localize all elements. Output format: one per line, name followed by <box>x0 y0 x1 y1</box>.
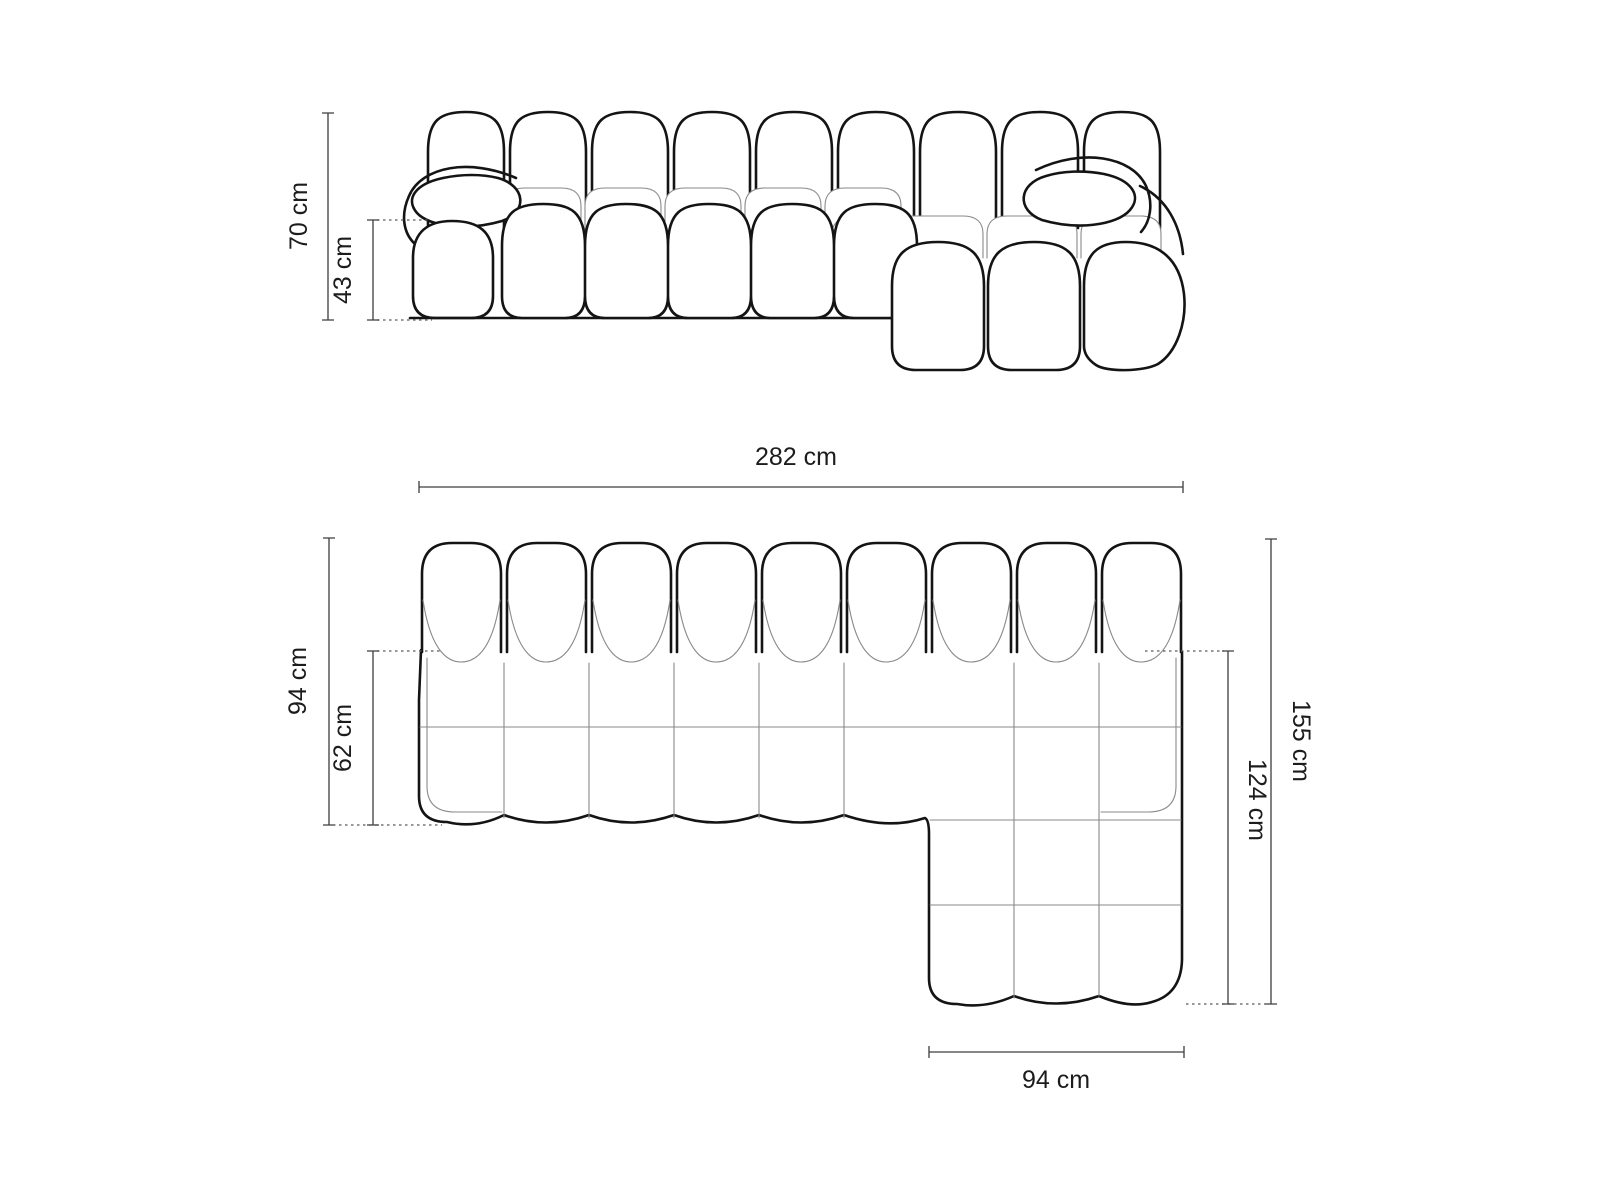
plan-sofa-drawing <box>419 543 1182 1005</box>
overall-depth-dimension-label: 155 cm <box>1287 700 1315 782</box>
body-depth-dimension-label: 94 cm <box>284 647 312 715</box>
sofa-dimension-diagram: 70 cm 43 cm 282 cm 94 cm <box>0 0 1600 1200</box>
seat-depth-dimension-line <box>367 651 379 825</box>
plan-seam-grid <box>420 663 1181 998</box>
chaise-depth-dimension-label: 124 cm <box>1243 759 1271 841</box>
body-depth-dimension-line <box>323 538 335 825</box>
front-dimensions: 70 cm 43 cm <box>285 113 432 320</box>
plan-dimensions: 282 cm 94 cm 62 cm 155 cm 124 cm 94 cm <box>284 443 1315 1094</box>
left-arm-front-bubble <box>413 221 493 318</box>
width-dimension-label: 282 cm <box>755 443 837 471</box>
chaise-width-dimension-label: 94 cm <box>1022 1066 1090 1094</box>
chaise-front-bubbles <box>892 242 1185 370</box>
seat-height-dimension-label: 43 cm <box>329 236 357 304</box>
chaise-width-dimension-line <box>929 1046 1184 1058</box>
plan-body-outline <box>419 650 1182 1005</box>
seat-depth-dimension-label: 62 cm <box>329 704 357 772</box>
sofa-dimension-diagram-page: 70 cm 43 cm 282 cm 94 cm <box>0 0 1600 1200</box>
right-armrest-roll <box>1024 172 1135 226</box>
front-elevation-view: 70 cm 43 cm <box>285 112 1185 370</box>
plan-right-arm-inset <box>1101 658 1176 812</box>
left-armrest-roll <box>412 175 520 227</box>
width-dimension-line <box>419 481 1183 493</box>
front-sofa-drawing <box>404 112 1184 370</box>
plan-back-cushions <box>422 543 1181 652</box>
front-seat-bubbles <box>502 204 917 318</box>
plan-left-arm-inset <box>427 658 502 812</box>
height-dimension-label: 70 cm <box>285 182 313 250</box>
top-plan-view: 282 cm 94 cm 62 cm 155 cm 124 cm 94 cm <box>284 443 1315 1094</box>
seat-height-dimension-line <box>367 220 379 320</box>
chaise-depth-dimension-line <box>1222 651 1234 1004</box>
